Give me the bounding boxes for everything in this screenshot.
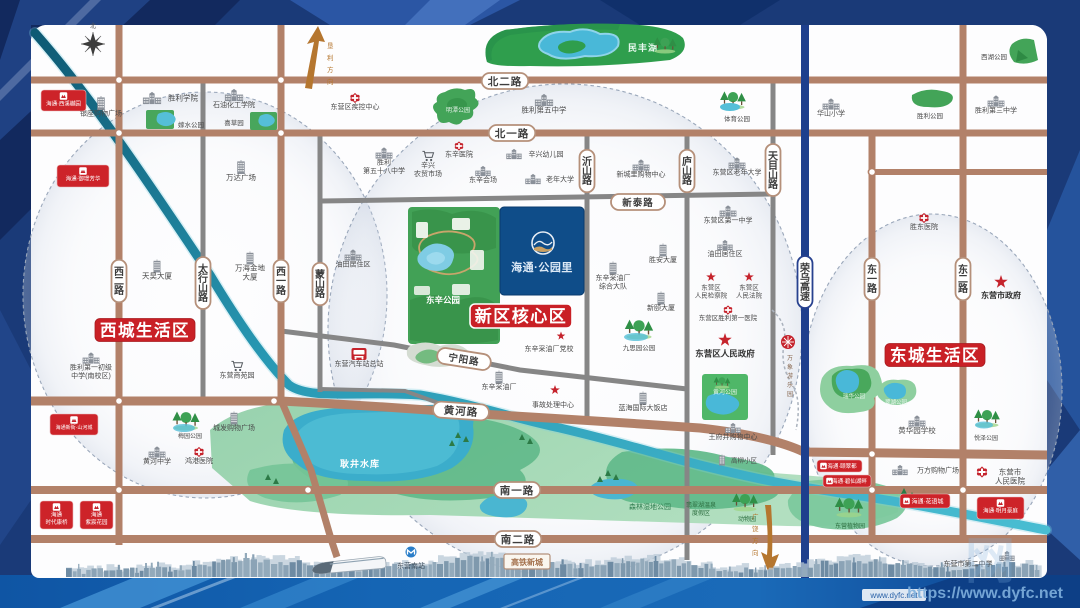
svg-text:农贸市场: 农贸市场 [414, 169, 442, 178]
svg-text:广: 广 [752, 512, 759, 521]
svg-text:东营区人民政府: 东营区人民政府 [695, 349, 755, 359]
svg-text:耿井水库: 耿井水库 [340, 458, 380, 469]
svg-text:万: 万 [787, 355, 793, 362]
svg-text:新泰路: 新泰路 [622, 197, 654, 209]
svg-text:东辛采油厂: 东辛采油厂 [596, 273, 631, 282]
svg-text:海通新街·山河城: 海通新街·山河城 [56, 424, 93, 431]
svg-text:东辛公园: 东辛公园 [426, 295, 460, 305]
svg-text:方: 方 [752, 536, 759, 545]
svg-text:中学(南校区): 中学(南校区) [71, 371, 111, 380]
svg-text:梅园公园: 梅园公园 [178, 432, 202, 440]
svg-text:黄河路: 黄河路 [443, 404, 478, 419]
svg-text:辛兴: 辛兴 [421, 161, 435, 170]
svg-text:海通·碧仙湖畔: 海通·碧仙湖畔 [832, 477, 867, 485]
svg-text:综合大队: 综合大队 [599, 282, 627, 291]
svg-text:乐: 乐 [787, 382, 793, 389]
svg-text:森林湿地公园: 森林湿地公园 [629, 502, 671, 511]
svg-text:路: 路 [867, 282, 878, 295]
svg-text:胜利第一初级: 胜利第一初级 [70, 363, 112, 372]
svg-text:万海金地: 万海金地 [235, 263, 265, 273]
svg-text:民丰湖: 民丰湖 [628, 42, 658, 53]
svg-text:东营区: 东营区 [701, 283, 721, 292]
svg-text:瑞华公园: 瑞华公园 [843, 392, 866, 400]
svg-text:向: 向 [327, 77, 334, 86]
svg-text:路: 路 [768, 178, 779, 191]
svg-text:天昊大厦: 天昊大厦 [142, 271, 172, 281]
svg-text:东营区胜利第一医院: 东营区胜利第一医院 [699, 313, 758, 322]
svg-text:新区核心区: 新区核心区 [475, 306, 568, 326]
svg-text:喜草园: 喜草园 [224, 118, 244, 127]
svg-text:垦: 垦 [327, 42, 334, 50]
svg-text:海通·公园里: 海通·公园里 [511, 260, 573, 274]
svg-text:东辛会场: 东辛会场 [469, 175, 497, 184]
svg-text:园: 园 [787, 391, 793, 398]
svg-text:北一路: 北一路 [495, 127, 530, 140]
svg-text:鸿港医院: 鸿港医院 [185, 456, 213, 465]
svg-text:度假区: 度假区 [692, 509, 710, 517]
svg-text:胜利公园: 胜利公园 [917, 111, 943, 120]
svg-text:方: 方 [327, 65, 334, 74]
svg-text:大厦: 大厦 [243, 272, 258, 282]
svg-text:黄河中学: 黄河中学 [143, 457, 171, 466]
svg-text:胜利第五中学: 胜利第五中学 [522, 105, 567, 115]
svg-text:人民医院: 人民医院 [995, 476, 1025, 486]
svg-text:南二路: 南二路 [501, 533, 536, 546]
svg-text:万方购物广场: 万方购物广场 [917, 466, 959, 475]
svg-text:黄河公园: 黄河公园 [713, 388, 737, 396]
svg-text:嫁水公园: 嫁水公园 [178, 120, 204, 129]
svg-text:西城生活区: 西城生活区 [100, 320, 190, 340]
svg-text:向: 向 [752, 548, 759, 557]
svg-text:城发购物广场: 城发购物广场 [213, 423, 255, 432]
svg-text:象: 象 [787, 363, 793, 371]
svg-text:紫宸花园: 紫宸花园 [85, 518, 108, 526]
svg-text:九思园公园: 九思园公园 [623, 343, 656, 352]
svg-text:海通: 海通 [51, 511, 63, 519]
svg-text:新颐大厦: 新颐大厦 [647, 303, 675, 312]
svg-text:饶: 饶 [752, 524, 759, 533]
svg-text:东营区第一中学: 东营区第一中学 [704, 216, 753, 225]
svg-text:胜利学院: 胜利学院 [168, 93, 198, 103]
svg-text:黄华园学校: 黄华园学校 [898, 425, 936, 435]
svg-text:蓝海国际大饭店: 蓝海国际大饭店 [619, 403, 668, 412]
svg-text:人民检察院: 人民检察院 [695, 291, 728, 300]
svg-text:石油化工学院: 石油化工学院 [213, 100, 255, 109]
svg-text:北二路: 北二路 [488, 75, 523, 88]
svg-text:路: 路 [114, 284, 125, 297]
svg-text:东营区: 东营区 [739, 283, 759, 292]
svg-text:路: 路 [582, 174, 593, 187]
svg-text:东辛医院: 东辛医院 [445, 150, 473, 159]
svg-text:海通·颐翠都: 海通·颐翠都 [827, 462, 857, 470]
svg-text:油田居住区: 油田居住区 [708, 249, 743, 258]
svg-text:东城生活区: 东城生活区 [890, 345, 980, 365]
svg-text:路: 路 [958, 282, 969, 295]
svg-text:速: 速 [800, 290, 810, 303]
svg-text:翠湖公园: 翠湖公园 [885, 398, 908, 406]
svg-text:华山小学: 华山小学 [817, 109, 845, 118]
svg-text:游: 游 [787, 372, 793, 380]
svg-text:路: 路 [276, 284, 287, 297]
svg-text:路: 路 [198, 291, 209, 304]
svg-text:东营市政府: 东营市政府 [981, 290, 1021, 300]
svg-text:东营商苑园: 东营商苑园 [220, 371, 255, 380]
svg-text:油田居住区: 油田居住区 [336, 260, 371, 269]
svg-text:东营南站: 东营南站 [397, 561, 425, 570]
svg-text:海通: 海通 [91, 511, 103, 519]
svg-text:高柳小区: 高柳小区 [731, 455, 758, 464]
svg-text:人民法院: 人民法院 [736, 291, 763, 300]
svg-text:胜利第三中学: 胜利第三中学 [975, 106, 1017, 115]
svg-text:辛兴幼儿园: 辛兴幼儿园 [529, 150, 564, 159]
svg-text:西湖公园: 西湖公园 [981, 52, 1007, 61]
svg-text:胜安大厦: 胜安大厦 [649, 255, 677, 264]
svg-text:老年大学: 老年大学 [546, 175, 574, 184]
svg-text:胜东医院: 胜东医院 [910, 222, 938, 231]
svg-text:万达广场: 万达广场 [226, 172, 256, 182]
svg-text:体育公园: 体育公园 [724, 114, 750, 123]
svg-text:南一路: 南一路 [500, 484, 535, 497]
svg-text:王府井购物中心: 王府井购物中心 [709, 432, 758, 441]
svg-text:第五十八中学: 第五十八中学 [363, 166, 405, 175]
svg-text:网: 网 [965, 533, 1015, 589]
svg-text:新城里购物中心: 新城里购物中心 [617, 170, 666, 179]
svg-text:时代康桥: 时代康桥 [45, 518, 68, 526]
svg-text:东营植物园: 东营植物园 [835, 522, 865, 530]
svg-text:事故处理中心: 事故处理中心 [532, 400, 574, 409]
svg-text:海通·明月豪庭: 海通·明月豪庭 [983, 507, 1018, 515]
svg-text:东营汽车站总站: 东营汽车站总站 [335, 359, 384, 368]
svg-text:利: 利 [327, 53, 334, 62]
svg-text:高铁新城: 高铁新城 [511, 557, 543, 567]
svg-text:海通·御璟芳华: 海通·御璟芳华 [66, 175, 101, 183]
svg-text:东营区疾控中心: 东营区疾控中心 [331, 102, 380, 111]
svg-text:东辛采油厂党校: 东辛采油厂党校 [525, 344, 574, 353]
svg-text:东辛采油厂: 东辛采油厂 [482, 382, 517, 391]
svg-text:海通·西溪樾园: 海通·西溪樾园 [46, 100, 81, 108]
svg-text:东营区老年大学: 东营区老年大学 [713, 168, 762, 177]
svg-text:路: 路 [315, 287, 326, 300]
svg-text:海通·花语城: 海通·花语城 [912, 497, 944, 505]
svg-text:银座购物广场: 银座购物广场 [80, 109, 122, 118]
svg-text:东营市: 东营市 [999, 467, 1022, 477]
svg-text:胜利: 胜利 [377, 158, 391, 167]
svg-text:明潭公园: 明潭公园 [446, 106, 470, 114]
svg-text:翡翠湖温泉: 翡翠湖温泉 [686, 501, 716, 509]
svg-text:悦泽公园: 悦泽公园 [974, 434, 998, 442]
svg-text:路: 路 [682, 174, 693, 187]
svg-text:北: 北 [90, 22, 96, 30]
